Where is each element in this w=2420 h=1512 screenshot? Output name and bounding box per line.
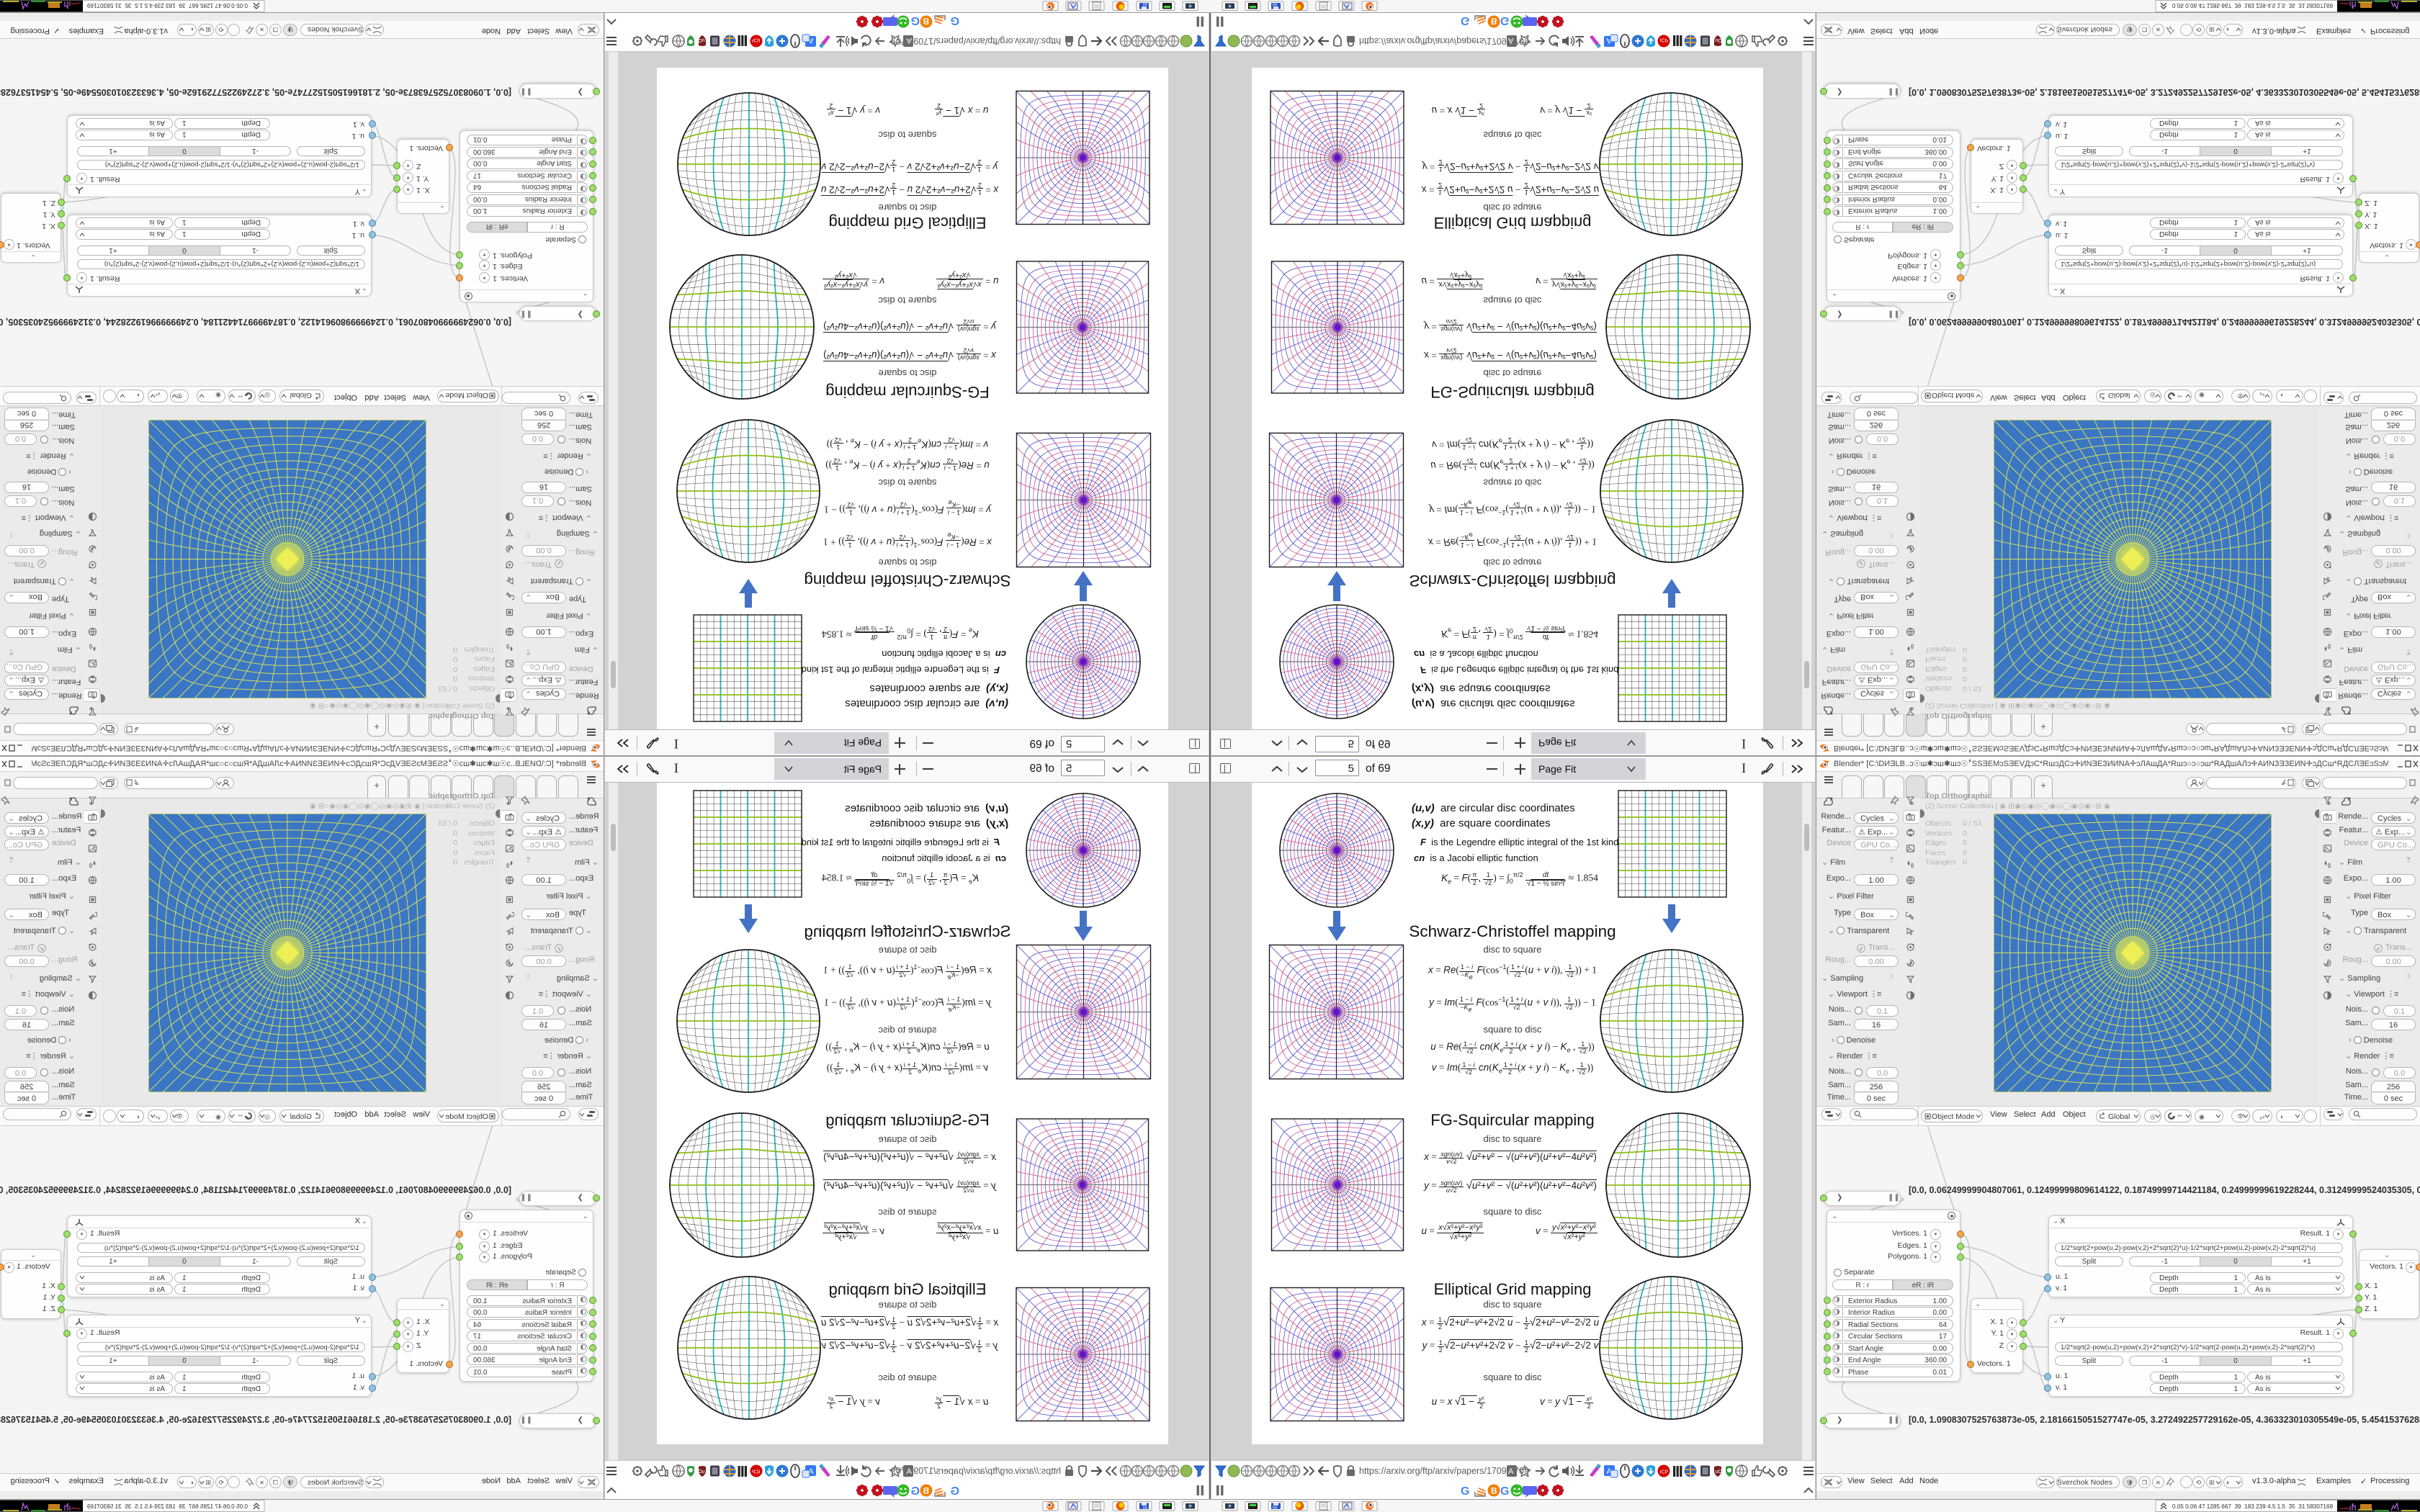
svg-text:A: A: [906, 36, 912, 45]
svg-text:64: 64: [1143, 2, 1147, 6]
svg-text:ICP: ICP: [1660, 37, 1669, 42]
svg-text:0.05 0.06 47 1285 667 39 183: 0.05 0.06 47 1285 667 39 183 239 4.5 1.5…: [2172, 2, 2334, 9]
svg-text:G: G: [911, 1485, 920, 1498]
svg-text:B: B: [923, 1486, 929, 1496]
svg-text:G: G: [951, 1485, 959, 1498]
svg-text:G: G: [1461, 14, 1469, 27]
svg-text:ICP: ICP: [752, 1470, 761, 1475]
svg-text:uO: uO: [1716, 1470, 1723, 1475]
svg-text:0.05 0.06 47 1285 667 39 183: 0.05 0.06 47 1285 667 39 183 239 4.5 1.5…: [2172, 1503, 2334, 1510]
svg-text:uO: uO: [1716, 37, 1723, 42]
svg-text:A: A: [1508, 1467, 1514, 1476]
svg-text:uO: uO: [698, 37, 705, 42]
svg-text:64: 64: [1273, 2, 1277, 6]
svg-text:https://arxiv.org/ftp/arxiv/pa: https://arxiv.org/ftp/arxiv/papers/1709/…: [891, 36, 1061, 46]
svg-text:0.05 0.06 47 1285 667 39 183: 0.05 0.06 47 1285 667 39 183 239 4.5 1.5…: [86, 2, 248, 9]
svg-text:B: B: [923, 17, 929, 27]
svg-text:0.05 0.06 47 1285 667 39 183: 0.05 0.06 47 1285 667 39 183 239 4.5 1.5…: [86, 1503, 248, 1510]
svg-text:B: B: [1491, 17, 1497, 27]
svg-text:https://arxiv.org/ftp/arxiv/pa: https://arxiv.org/ftp/arxiv/papers/1709/…: [1359, 36, 1529, 46]
svg-text:G: G: [1500, 14, 1509, 27]
svg-text:64: 64: [1143, 1506, 1147, 1511]
svg-text:uO: uO: [698, 1470, 705, 1475]
svg-text:G: G: [1461, 1485, 1469, 1498]
svg-text:B: B: [1491, 1486, 1497, 1496]
svg-text:G: G: [1500, 1485, 1509, 1498]
svg-text:64: 64: [1273, 1506, 1277, 1511]
svg-text:G: G: [911, 14, 920, 27]
svg-text:A: A: [1508, 36, 1514, 45]
svg-text:https://arxiv.org/ftp/arxiv/pa: https://arxiv.org/ftp/arxiv/papers/1709/…: [891, 1466, 1061, 1476]
svg-text:ICP: ICP: [752, 37, 761, 42]
svg-text:A: A: [906, 1467, 912, 1476]
svg-text:ICP: ICP: [1660, 1470, 1669, 1475]
svg-text:G: G: [951, 14, 959, 27]
svg-text:https://arxiv.org/ftp/arxiv/pa: https://arxiv.org/ftp/arxiv/papers/1709/…: [1359, 1466, 1529, 1476]
